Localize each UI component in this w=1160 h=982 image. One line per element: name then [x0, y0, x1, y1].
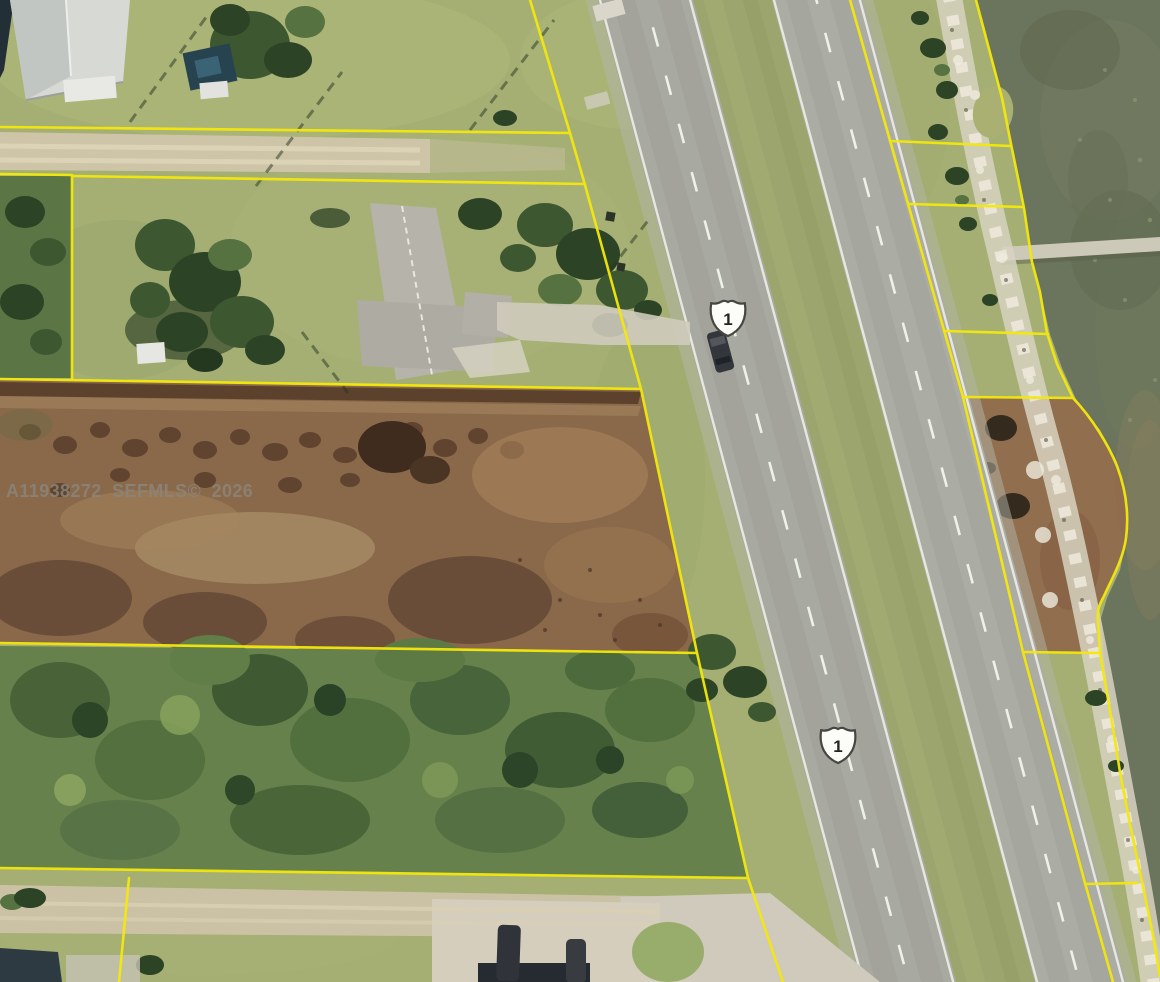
route-number: 1	[723, 310, 732, 329]
aerial-map-image: A11938272 SEFMLS© 2026 1 1	[0, 0, 1160, 982]
shed-small	[136, 342, 165, 364]
parked-vehicle-1	[496, 925, 521, 982]
shed	[199, 81, 228, 99]
route-number: 1	[833, 737, 842, 756]
parcel-line-strip-div-4	[1085, 883, 1137, 884]
parcel-line-bulge-top	[963, 397, 1073, 398]
parcel-line-bulge-bottom	[1023, 652, 1100, 653]
wooded-parcel-left	[0, 176, 72, 378]
porch	[63, 76, 117, 102]
highlighted-parcel-main	[0, 380, 697, 664]
mls-watermark: A11938272 SEFMLS© 2026	[6, 481, 253, 501]
parked-vehicle-2	[566, 939, 586, 982]
wooded-parcel-bottom	[0, 635, 748, 878]
